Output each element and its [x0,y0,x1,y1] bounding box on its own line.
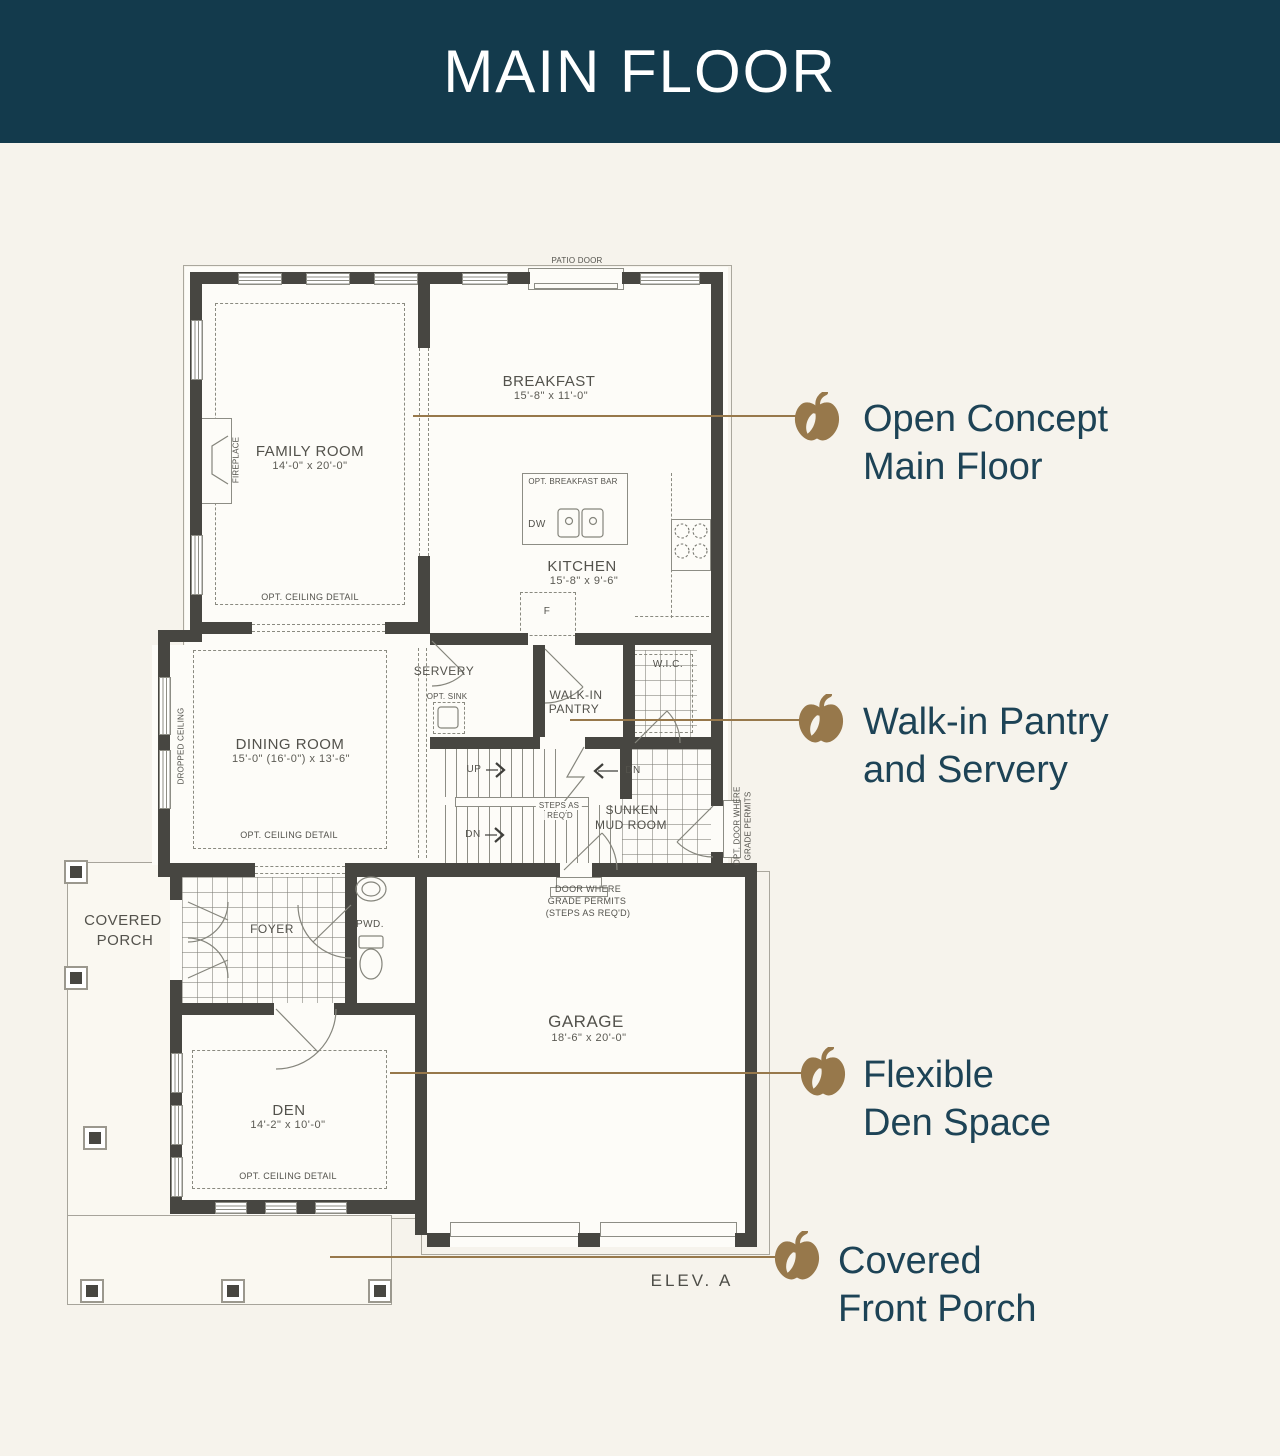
callout-den-space: Flexible Den Space [863,1051,1051,1147]
room-label-porch-1: COVERED [84,912,162,929]
leader-line-open-concept [413,415,797,417]
garage-paper [427,875,757,1247]
note-side-door-2: GRADE PERMITS [744,792,753,861]
stairs-up-flight [445,749,561,797]
note-opt-ceiling-den: OPT. CEILING DETAIL [239,1171,337,1181]
wall [418,284,430,348]
apple-icon [793,392,841,444]
cased-opening-dash [252,624,385,625]
callout-line: Flexible [863,1051,1051,1099]
note-fireplace: FIREPLACE [232,437,241,483]
room-dims-kitchen: 15'-8" x 9'-6" [550,575,619,587]
note-grade-2: GRADE PERMITS [548,896,626,906]
wall [735,1233,757,1247]
porch-post [83,1126,107,1150]
room-label-pantry-2: PANTRY [549,702,600,716]
wall [585,737,723,749]
callout-line: and Servery [863,746,1109,794]
callout-line: Walk-in Pantry [863,698,1109,746]
kitchen-counter-dash-h [635,616,709,617]
room-label-powder: PWD. [356,919,384,930]
note-patio-door: PATIO DOOR [551,256,602,265]
room-label-family: FAMILY ROOM [256,443,364,460]
window [215,1202,247,1214]
room-label-servery: SERVERY [414,664,474,678]
page-title: MAIN FLOOR [443,37,836,106]
room-label-mud-2: MUD ROOM [595,818,667,832]
note-fridge: F [544,606,551,617]
note-up: UP [467,764,482,775]
window [191,320,203,380]
cased-opening-dash [255,873,345,874]
apple-icon [797,694,845,746]
room-dims-family: 14'-0" x 20'-0" [272,460,347,472]
note-dn: DN [625,765,640,776]
wall [170,877,182,900]
wall [533,645,545,737]
leader-line-porch [330,1256,777,1258]
patio-door-panel [534,283,618,289]
wall [345,877,357,1003]
wall [578,1233,600,1247]
window [159,677,171,735]
wall [430,633,528,645]
leader-line-den [390,1072,803,1074]
cased-opening-dash [428,348,429,556]
wall [385,622,430,634]
foyer-tile-floor [182,877,345,1003]
porch-post [221,1279,245,1303]
room-label-den: DEN [272,1102,305,1119]
window [191,535,203,595]
wall [430,737,540,749]
room-dims-garage: 18'-6" x 20'-0" [551,1032,626,1044]
note-grade-3: (STEPS AS REQ'D) [546,908,631,918]
opt-sink-outline [433,702,465,734]
wall [334,1003,427,1015]
note-dishwasher: DW [528,519,546,530]
stove [671,519,711,571]
room-label-kitchen: KITCHEN [547,558,616,575]
wall [415,877,427,1235]
header-banner: MAIN FLOOR [0,0,1280,143]
callout-front-porch: Covered Front Porch [838,1237,1037,1333]
note-steps-2: REQ'D [544,811,576,820]
window [171,1105,183,1145]
cased-opening-dash [418,648,419,858]
callout-line: Front Porch [838,1285,1037,1333]
wall [158,630,202,642]
garage-door-left [450,1222,580,1237]
wall [345,863,560,877]
room-label-breakfast: BREAKFAST [503,373,596,390]
room-dims-dining: 15'-0" (16'-0") x 13'-6" [232,753,350,765]
note-side-door-1: OPT. DOOR WHERE [733,786,742,865]
window [238,273,282,285]
window [171,1053,183,1093]
wall [182,1003,274,1015]
note-opt-ceiling-family: OPT. CEILING DETAIL [258,592,362,602]
cased-opening-dash [426,648,427,858]
room-label-dining: DINING ROOM [236,736,345,753]
callout-pantry-servery: Walk-in Pantry and Servery [863,698,1109,794]
room-label-mud-1: SUNKEN [605,803,658,817]
room-label-garage: GARAGE [548,1012,624,1032]
callout-line: Covered [838,1237,1037,1285]
room-label-wic: W.I.C. [653,659,683,670]
callout-line: Main Floor [863,443,1108,491]
fireplace [200,418,232,504]
porch-post [80,1279,104,1303]
apple-icon [773,1231,821,1283]
wall [745,877,757,1235]
porch-post [64,966,88,990]
room-dims-den: 14'-2" x 10'-0" [250,1119,325,1131]
garage-door-right [600,1222,737,1237]
cased-opening-dash [252,631,385,632]
wall [711,284,723,806]
window [306,273,350,285]
callout-line: Open Concept [863,395,1108,443]
page: MAIN FLOOR [0,0,1280,1456]
porch-post [368,1279,392,1303]
room-dims-breakfast: 15'-8" x 11'-0" [514,390,588,402]
room-label-foyer: FOYER [250,922,294,936]
window [462,273,508,285]
window [159,750,171,809]
wall [427,1233,450,1247]
window [374,273,418,285]
callout-open-concept: Open Concept Main Floor [863,395,1108,491]
cased-opening-dash [419,348,420,556]
wall [575,633,723,645]
apple-icon [799,1047,847,1099]
leader-line-pantry [570,719,801,721]
room-label-pantry-1: WALK-IN [549,688,602,702]
callout-line: Den Space [863,1099,1051,1147]
window [265,1202,297,1214]
note-grade-1: DOOR WHERE [555,884,621,894]
note-dropped-ceiling: DROPPED CEILING [177,708,186,785]
note-steps-1: STEPS AS [536,801,582,810]
wall [623,645,635,737]
note-opt-ceiling-dining: OPT. CEILING DETAIL [240,830,338,840]
room-label-porch-2: PORCH [97,932,154,949]
note-opt-sink: OPT. SINK [427,692,467,701]
elevation-label: ELEV. A [651,1271,734,1291]
note-opt-breakfast-bar: OPT. BREAKFAST BAR [528,477,617,486]
porch-post [64,860,88,884]
window [640,273,700,285]
wall [158,863,255,877]
window [315,1202,347,1214]
wall [170,1200,427,1214]
note-dn: DN [465,829,480,840]
window [171,1157,183,1197]
cased-opening-dash [255,866,345,867]
